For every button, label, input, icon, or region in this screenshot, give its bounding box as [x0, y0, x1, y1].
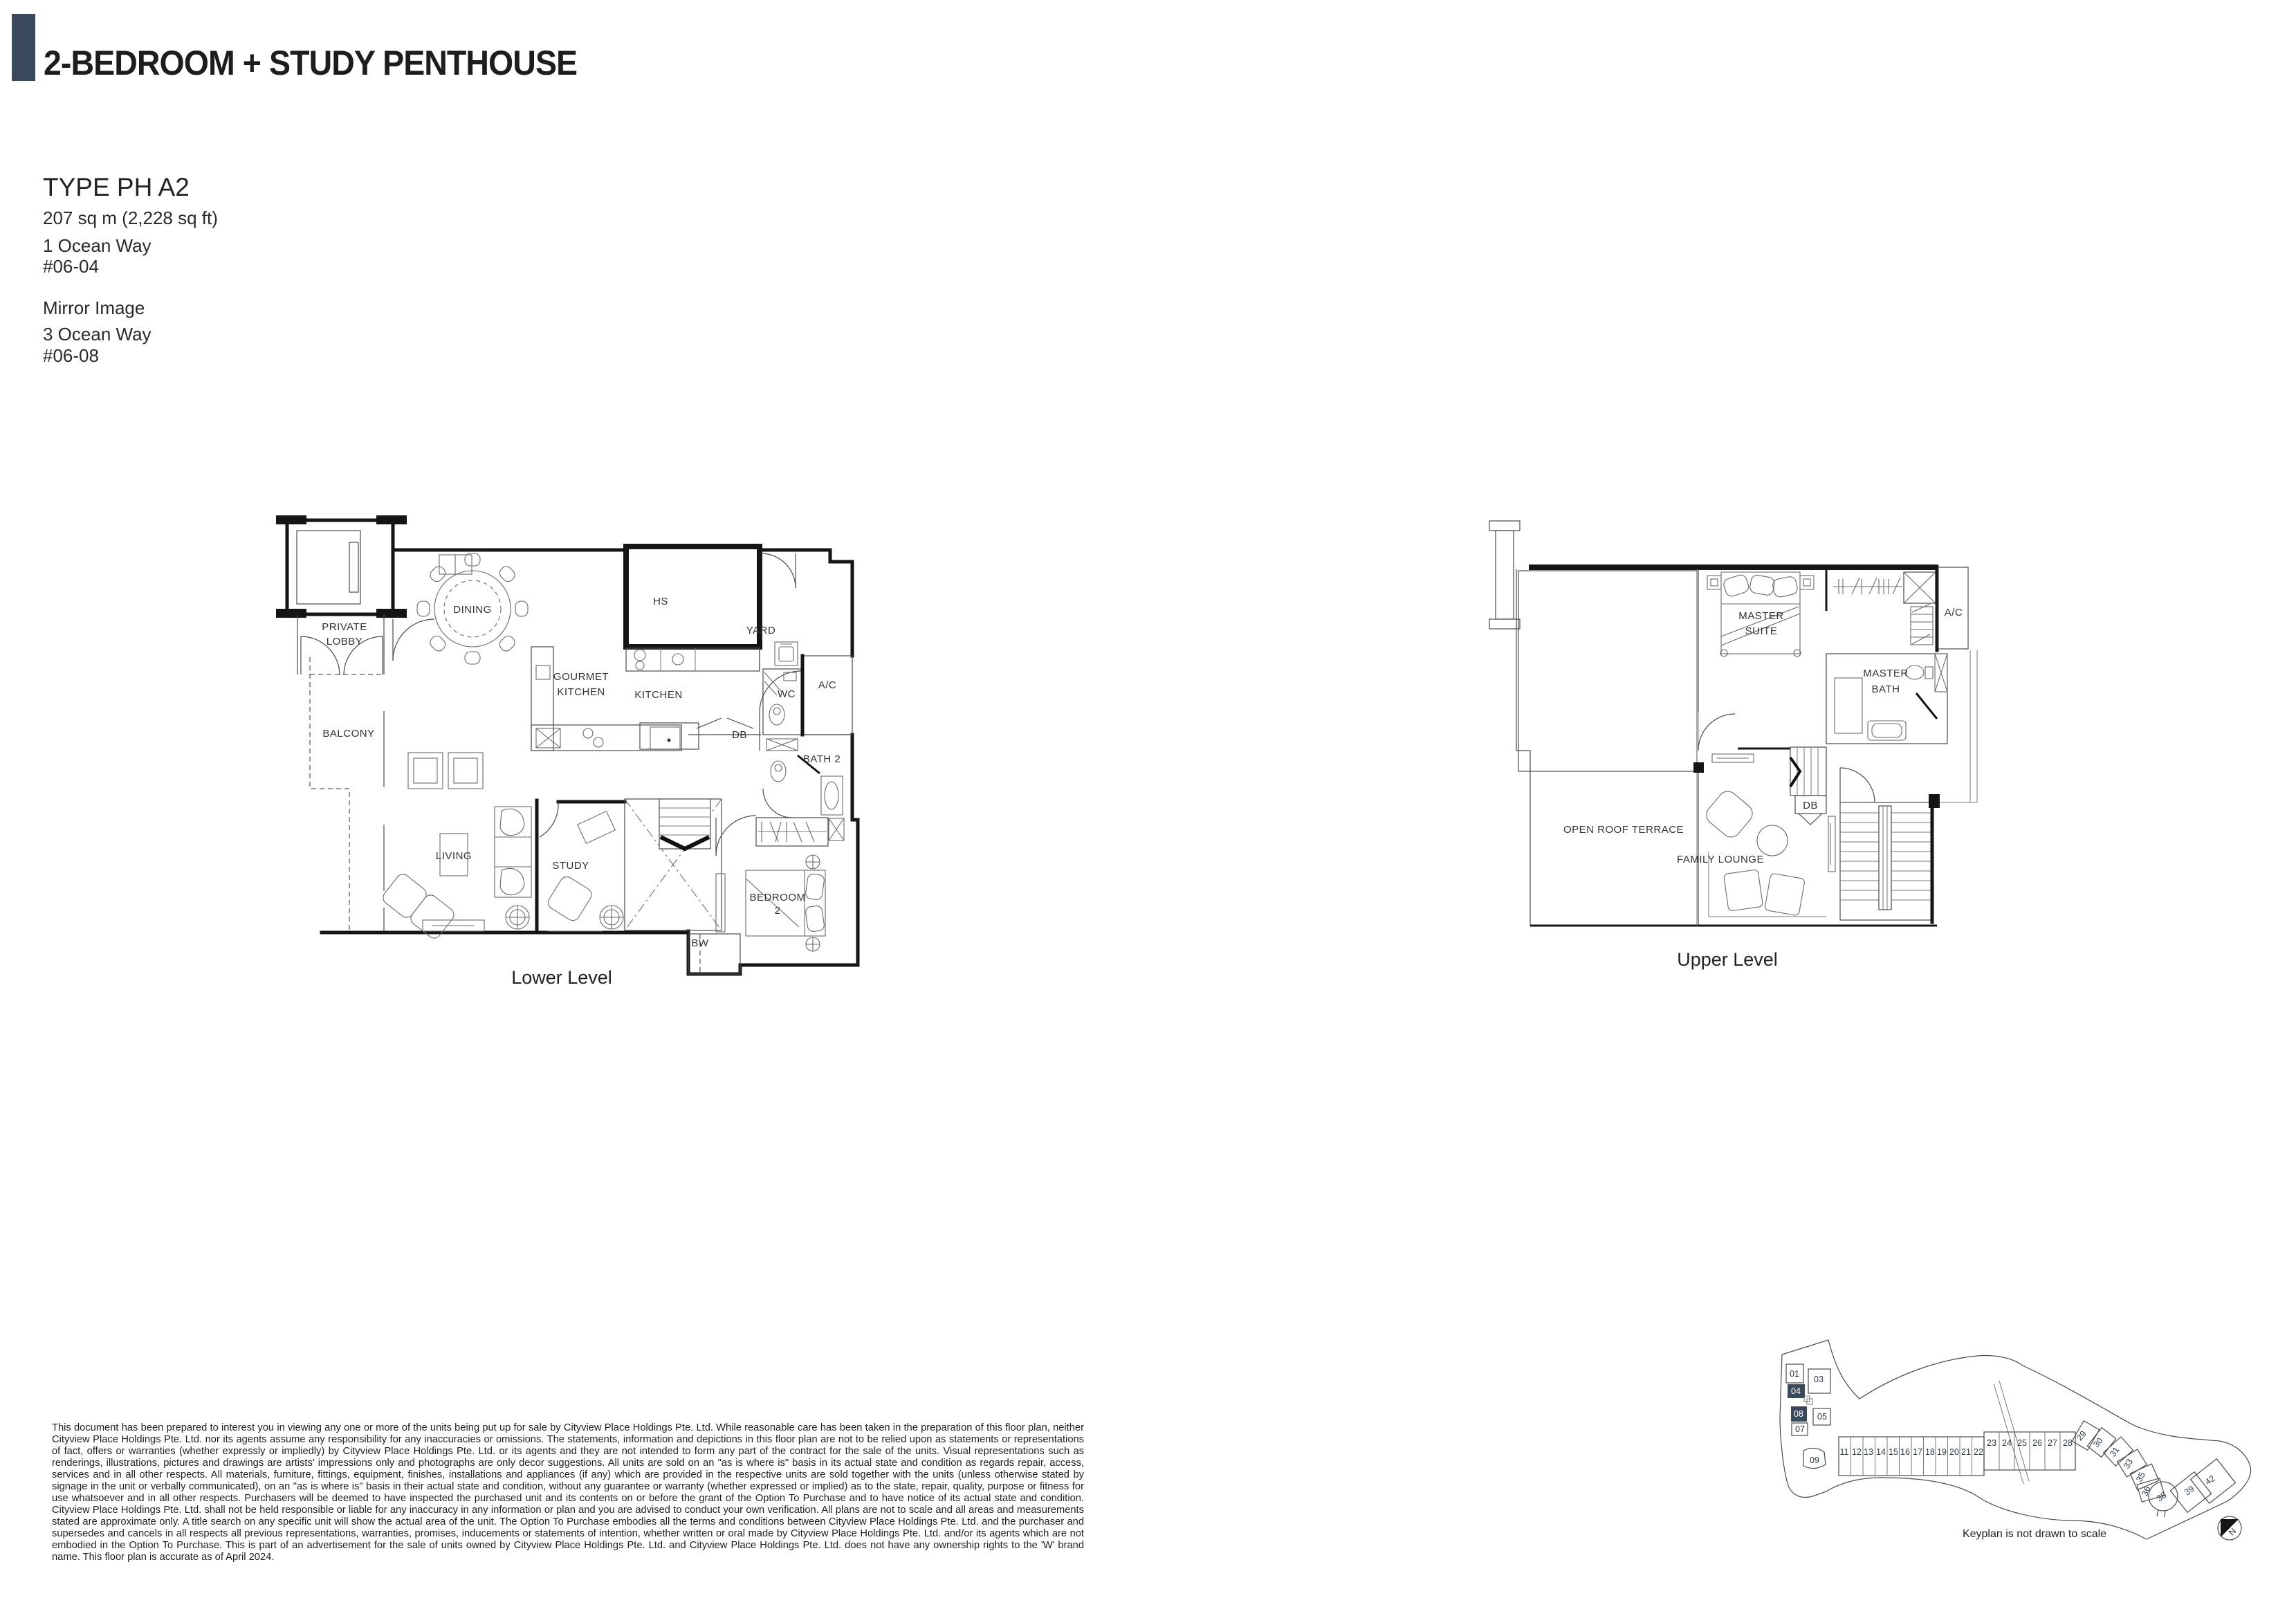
keyplan-unit-label: 09	[1810, 1455, 1819, 1465]
keyplan-unit-label: 22	[1974, 1447, 1983, 1457]
keyplan-unit-label: 11	[1840, 1447, 1849, 1457]
keyplan-unit-label: 18	[1925, 1447, 1935, 1457]
keyplan-unit-label: 42	[2203, 1473, 2216, 1487]
master-suite-label-2: SUITE	[1745, 625, 1778, 637]
keyplan-unit-label: 07	[1795, 1424, 1805, 1434]
ac-label: A/C	[818, 679, 837, 691]
keyplan-unit-label: 12	[1852, 1447, 1862, 1457]
gourmet-kitchen-label-1: GOURMET	[553, 671, 609, 683]
balcony	[310, 614, 384, 931]
family-lounge-label: FAMILY LOUNGE	[1677, 854, 1764, 865]
keyplan-unit-label: 33	[2122, 1457, 2135, 1470]
open-roof-terrace-label: OPEN ROOF TERRACE	[1563, 824, 1684, 836]
disclaimer-text: This document has been prepared to inter…	[52, 1422, 1084, 1563]
living-room	[380, 753, 531, 941]
bedroom-2	[716, 816, 844, 951]
hs-label: HS	[653, 596, 668, 607]
toilet-icon	[1906, 665, 1924, 679]
private-lobby-label-2: LOBBY	[327, 636, 363, 648]
keyplan-unit-label: 25	[2017, 1438, 2027, 1448]
study-label: STUDY	[552, 860, 589, 872]
keyplan-unit-label: 19	[1937, 1447, 1947, 1457]
keyplan-unit-label: 38	[2155, 1490, 2168, 1503]
mirror-image-label: Mirror Image	[43, 297, 145, 319]
yard	[761, 553, 798, 665]
kitchen-label: KITCHEN	[634, 689, 682, 701]
keyplan-unit-label: 05	[1817, 1412, 1827, 1422]
ac-ledge	[802, 656, 852, 735]
unit-area: 207 sq m (2,228 sq ft)	[43, 208, 218, 229]
bw-label: BW	[691, 937, 709, 949]
keyplan-unit-label: 26	[2032, 1438, 2042, 1448]
unit-2-number: #06-08	[43, 345, 99, 367]
planter-ledge	[1489, 521, 1520, 629]
private-lobby	[301, 619, 434, 675]
stairs-void	[625, 799, 722, 930]
master-bath-label-1: MASTER	[1863, 668, 1909, 679]
keyplan-unit-label: 35	[2134, 1471, 2147, 1484]
master-bath-label-2: BATH	[1872, 683, 1900, 695]
private-lobby-label-1: PRIVATE	[322, 621, 367, 633]
keyplan-unit-label: 04	[1791, 1386, 1801, 1396]
bath-2	[763, 739, 843, 818]
wardrobe	[1826, 569, 1936, 645]
floorplan-page: 2-BEDROOM + STUDY PENTHOUSE TYPE PH A2 2…	[0, 0, 2296, 1598]
wc-label: WC	[778, 688, 796, 700]
wc	[763, 669, 801, 735]
ac-label: A/C	[1945, 607, 1963, 618]
gourmet-kitchen-label-2: KITCHEN	[557, 686, 605, 698]
unit-1-number: #06-04	[43, 256, 99, 277]
upper-level-caption: Upper Level	[1658, 949, 1797, 971]
unit-2-address: 3 Ocean Way	[43, 324, 151, 345]
main-stairs	[1840, 768, 1940, 922]
unit-type-label: TYPE PH A2	[43, 173, 190, 202]
bath2-label: BATH 2	[803, 753, 841, 765]
bedroom2-label-2: 2	[775, 905, 781, 917]
keyplan-unit-label: 14	[1876, 1447, 1886, 1457]
keyplan-unit-label: 39	[2183, 1484, 2196, 1497]
page-title: 2-BEDROOM + STUDY PENTHOUSE	[44, 43, 577, 83]
master-suite-label-1: MASTER	[1738, 610, 1784, 622]
keyplan-unit-label: 20	[1949, 1447, 1959, 1457]
keyplan-caption: Keyplan is not drawn to scale	[1963, 1528, 2106, 1540]
keyplan-unit-label: 36	[2140, 1485, 2152, 1497]
keyplan-unit-label: 27	[2048, 1438, 2057, 1448]
keyplan-row-23-28	[1984, 1432, 2075, 1470]
balcony-label: BALCONY	[322, 728, 374, 740]
keyplan-unit-label: 16	[1900, 1447, 1910, 1457]
yard-label: YARD	[746, 625, 776, 636]
ac-ledge	[1932, 567, 1977, 802]
keyplan-unit-label: 17	[1913, 1447, 1922, 1457]
accent-bar	[12, 14, 35, 81]
lower-level-caption: Lower Level	[493, 967, 631, 989]
keyplan-unit-label: 21	[1961, 1447, 1971, 1457]
keyplan-unit-label: 28	[2063, 1438, 2073, 1448]
keyplan-unit-label: 15	[1889, 1447, 1898, 1457]
private-lift	[276, 515, 407, 618]
upper-outer-walls	[1516, 567, 1938, 926]
keyplan-unit-label: 29	[2075, 1429, 2088, 1443]
keyplan-unit-label: 23	[1987, 1438, 1996, 1448]
arrival-stair	[1738, 747, 1826, 825]
dining-label: DINING	[453, 604, 492, 616]
open-roof-terrace	[1518, 569, 1697, 926]
keyplan-unit-label: 24	[2002, 1438, 2012, 1448]
unit-1-address: 1 Ocean Way	[43, 235, 151, 257]
household-shelter	[626, 547, 760, 647]
db-label: DB	[732, 729, 747, 741]
upper-level-floorplan: OPEN ROOF TERRACE MASTER SUITE	[1487, 515, 2013, 965]
bedroom2-label-1: BEDROOM	[749, 892, 805, 903]
washer-icon	[775, 642, 798, 665]
lower-level-floorplan: BALCONY PRIVATE LOBBY	[273, 512, 868, 996]
keyplan-unit-label: 13	[1864, 1447, 1873, 1457]
db-label: DB	[1803, 800, 1818, 811]
keyplan-unit-label: 03	[1814, 1375, 1824, 1384]
keyplan-unit-label: 08	[1794, 1409, 1803, 1419]
keyplan: 01 03 04 05 07 08 09 11 12 13 14 15 16 1…	[1771, 1335, 2296, 1563]
living-label: LIVING	[436, 850, 472, 862]
keyplan-unit-label: 01	[1790, 1369, 1799, 1379]
